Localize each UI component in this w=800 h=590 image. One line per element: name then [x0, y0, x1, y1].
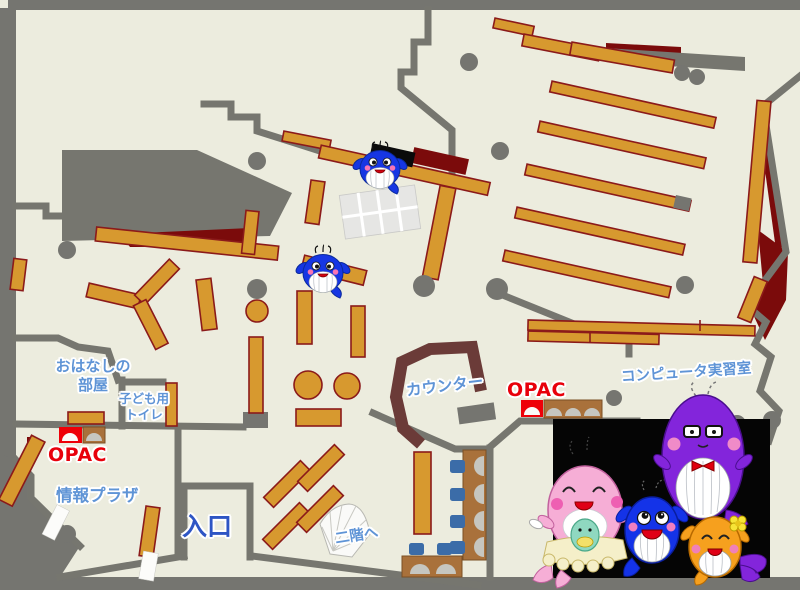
wall [60, 556, 184, 577]
bookshelf [249, 337, 263, 413]
eye-glint [661, 514, 663, 516]
pillar [689, 69, 705, 85]
cheek [629, 523, 638, 532]
bookshelf [538, 121, 706, 169]
label-opac-left: OPAC [48, 444, 107, 468]
counter-inner-desk [457, 402, 496, 424]
cheek [333, 269, 339, 275]
cheek [692, 545, 701, 554]
pillar [674, 65, 690, 81]
chair [450, 541, 465, 554]
pupil [372, 161, 376, 165]
pupil [327, 265, 331, 269]
label-opac-right: OPAC [507, 379, 566, 403]
bookshelf [133, 300, 168, 350]
pupil [315, 265, 319, 269]
cheek [667, 523, 676, 532]
pillar [460, 53, 478, 71]
pupil [658, 512, 665, 519]
round-table [334, 373, 360, 399]
skirt-frill [557, 558, 569, 570]
bookshelf [351, 306, 365, 357]
bookshelf [139, 506, 160, 557]
skirt-frill [602, 557, 614, 569]
pupil [642, 512, 649, 519]
pillar [491, 142, 509, 160]
pillar [676, 276, 694, 294]
skirt-frill [572, 560, 584, 572]
cheek [668, 438, 681, 451]
label-kids-toilet-line2: トイレ [116, 407, 172, 423]
mascot-whale-small [294, 245, 352, 298]
label-kids-toilet: 子ども用 トイレ [116, 391, 172, 422]
chair [409, 543, 424, 555]
bookshelf [515, 207, 685, 255]
round-table [246, 300, 268, 322]
cheek [551, 498, 563, 510]
bookshelf [68, 412, 104, 424]
chair [450, 460, 465, 473]
skirt-frill [543, 554, 555, 566]
library-floor-map: おはなしの 部屋 子ども用 トイレ OPAC 情報プラザ 入口 二階へ カウンタ… [0, 0, 800, 590]
spout [691, 382, 716, 396]
cheek [728, 438, 741, 451]
bookshelf [297, 291, 312, 344]
pillar [486, 278, 508, 300]
wall-block [243, 412, 268, 428]
spout [315, 245, 330, 253]
pillar [606, 390, 622, 406]
chair [437, 543, 452, 555]
bookshelf [525, 164, 691, 211]
grid-table [339, 185, 420, 239]
skirt-frill [587, 560, 599, 572]
bookshelf [503, 250, 671, 298]
baby-eye [588, 528, 591, 531]
chair [450, 515, 465, 528]
cheek [390, 165, 396, 171]
bookshelf [305, 180, 325, 225]
baby-bib [577, 537, 593, 547]
outer-wall-bottom [0, 577, 800, 590]
chair [450, 488, 465, 501]
wall [16, 206, 62, 216]
bookshelf [135, 259, 180, 305]
label-entrance: 入口 [182, 511, 232, 542]
outer-wall-left [0, 8, 16, 460]
cheek [365, 165, 371, 171]
label-info-plaza: 情報プラザ [56, 486, 139, 507]
label-story-room: おはなしの 部屋 [50, 357, 136, 395]
wall [16, 424, 243, 427]
eye-glint [645, 514, 647, 516]
cheek [308, 269, 314, 275]
cheek [611, 496, 623, 508]
round-table [294, 371, 322, 399]
eye [712, 430, 716, 434]
flower [730, 516, 746, 531]
bookshelf [493, 18, 534, 36]
bookshelf [550, 81, 716, 128]
baby-eye [578, 528, 581, 531]
pillar [248, 152, 266, 170]
bookshelf [86, 283, 141, 309]
bookshelf [422, 185, 455, 279]
bookshelf [196, 278, 217, 330]
outer-wall-top [8, 0, 800, 10]
flower-center [735, 521, 741, 527]
pillar [247, 279, 267, 299]
label-kids-toilet-line1: 子ども用 [116, 391, 172, 407]
bookshelf [10, 258, 27, 290]
opac-station-left [59, 427, 105, 443]
pupil [384, 161, 388, 165]
pillar [413, 275, 435, 297]
pillar [58, 241, 76, 259]
table [296, 409, 341, 426]
bookshelf [414, 452, 431, 534]
cheek [730, 545, 739, 554]
label-story-room-line1: おはなしの [50, 357, 136, 376]
eye [690, 430, 694, 434]
